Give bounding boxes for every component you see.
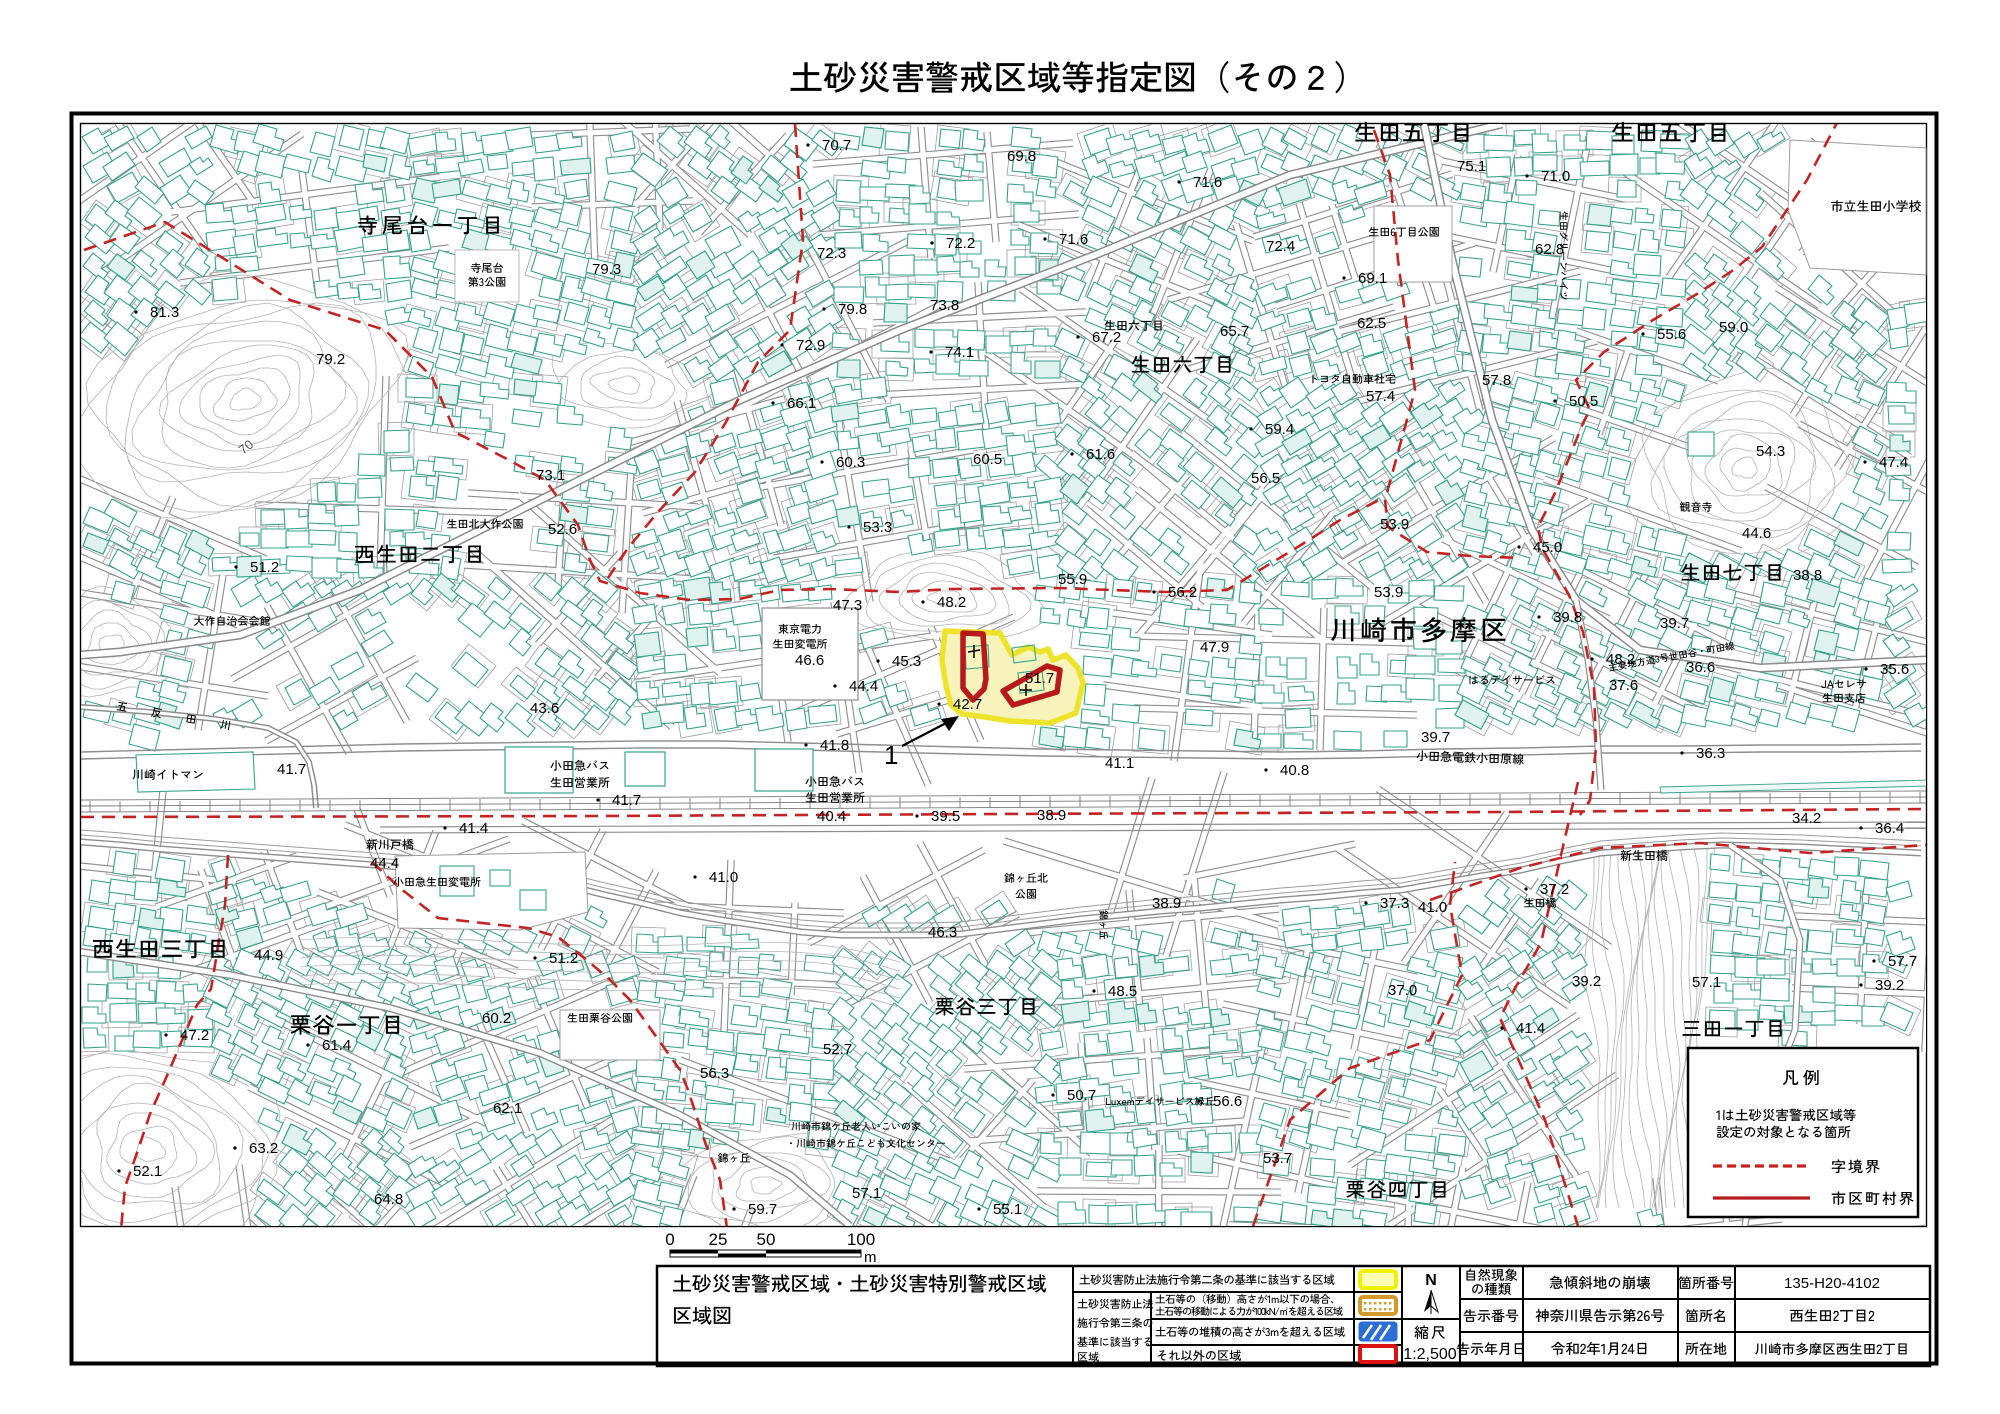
- svg-text:71.6: 71.6: [1193, 174, 1222, 191]
- svg-text:70.7: 70.7: [822, 137, 851, 154]
- svg-text:40.8: 40.8: [1280, 762, 1309, 779]
- svg-text:72.3: 72.3: [817, 245, 846, 262]
- svg-text:60.5: 60.5: [973, 451, 1002, 468]
- svg-text:69.8: 69.8: [1007, 148, 1036, 165]
- svg-text:50.7: 50.7: [1067, 1087, 1096, 1104]
- svg-text:45.3: 45.3: [892, 653, 921, 670]
- svg-text:42.7: 42.7: [953, 696, 982, 713]
- svg-text:79.8: 79.8: [838, 301, 867, 318]
- svg-text:25: 25: [709, 1230, 728, 1249]
- svg-text:36.6: 36.6: [1686, 659, 1715, 676]
- svg-text:59.0: 59.0: [1719, 319, 1748, 336]
- svg-text:36.4: 36.4: [1875, 820, 1904, 837]
- svg-text:53.9: 53.9: [1380, 516, 1409, 533]
- svg-text:38.9: 38.9: [1037, 807, 1066, 824]
- svg-text:43.6: 43.6: [530, 700, 559, 717]
- svg-text:73.1: 73.1: [536, 467, 565, 484]
- svg-text:53.9: 53.9: [1374, 584, 1403, 601]
- svg-text:62.5: 62.5: [1357, 315, 1386, 332]
- svg-text:79.2: 79.2: [316, 351, 345, 368]
- svg-text:41.1: 41.1: [1105, 755, 1134, 772]
- svg-text:40.4: 40.4: [817, 808, 846, 825]
- svg-text:N: N: [1425, 1272, 1437, 1289]
- svg-text:47.2: 47.2: [180, 1027, 209, 1044]
- svg-text:69.1: 69.1: [1358, 270, 1387, 287]
- svg-text:72.9: 72.9: [796, 337, 825, 354]
- svg-text:39.8: 39.8: [1553, 609, 1582, 626]
- svg-text:1: 1: [884, 740, 898, 770]
- svg-text:56.3: 56.3: [700, 1065, 729, 1082]
- svg-text:57.1: 57.1: [1692, 974, 1721, 991]
- svg-text:60.3: 60.3: [836, 454, 865, 471]
- svg-text:50: 50: [757, 1230, 776, 1249]
- svg-text:41.0: 41.0: [709, 869, 738, 886]
- svg-text:45.0: 45.0: [1533, 539, 1562, 556]
- svg-text:37.2: 37.2: [1540, 881, 1569, 898]
- svg-text:57.7: 57.7: [1888, 953, 1917, 970]
- svg-text:38.9: 38.9: [1152, 895, 1181, 912]
- svg-text:56.2: 56.2: [1168, 584, 1197, 601]
- svg-text:52.7: 52.7: [823, 1041, 852, 1058]
- svg-text:51.7: 51.7: [1025, 670, 1054, 687]
- svg-text:67.2: 67.2: [1092, 329, 1121, 346]
- svg-text:51.2: 51.2: [250, 559, 279, 576]
- svg-text:37.3: 37.3: [1380, 895, 1409, 912]
- svg-text:100: 100: [847, 1230, 875, 1249]
- svg-text:53.7: 53.7: [1263, 1150, 1292, 1167]
- svg-text:57.1: 57.1: [852, 1185, 881, 1202]
- svg-text:41.4: 41.4: [459, 820, 488, 837]
- svg-text:81.3: 81.3: [150, 304, 179, 321]
- svg-text:m: m: [864, 1249, 877, 1266]
- svg-text:51.2: 51.2: [549, 950, 578, 967]
- svg-text:41.0: 41.0: [1418, 899, 1447, 916]
- svg-text:41.4: 41.4: [1516, 1020, 1545, 1037]
- svg-text:47.9: 47.9: [1200, 639, 1229, 656]
- svg-text:71.6: 71.6: [1059, 231, 1088, 248]
- svg-text:74.1: 74.1: [945, 344, 974, 361]
- svg-text:59.7: 59.7: [748, 1201, 777, 1218]
- svg-text:72.4: 72.4: [1266, 238, 1295, 255]
- svg-text:35.6: 35.6: [1880, 661, 1909, 678]
- svg-text:57.4: 57.4: [1366, 388, 1395, 405]
- svg-text:71.0: 71.0: [1541, 168, 1570, 185]
- svg-text:36.3: 36.3: [1696, 745, 1725, 762]
- svg-text:34.2: 34.2: [1792, 810, 1821, 827]
- svg-text:75.1: 75.1: [1457, 158, 1486, 175]
- svg-text:72.2: 72.2: [946, 235, 975, 252]
- svg-text:0: 0: [665, 1230, 674, 1249]
- svg-text:79.3: 79.3: [592, 261, 621, 278]
- svg-text:63.2: 63.2: [249, 1140, 278, 1157]
- svg-text:39.7: 39.7: [1660, 615, 1689, 632]
- svg-text:66.1: 66.1: [787, 395, 816, 412]
- svg-text:55.1: 55.1: [993, 1201, 1022, 1218]
- svg-text:38.8: 38.8: [1793, 567, 1822, 584]
- svg-text:48.5: 48.5: [1108, 983, 1137, 1000]
- svg-text:44.9: 44.9: [254, 947, 283, 964]
- svg-text:39.2: 39.2: [1875, 977, 1904, 994]
- svg-text:41.7: 41.7: [612, 792, 641, 809]
- svg-text:37.6: 37.6: [1609, 677, 1638, 694]
- svg-text:44.4: 44.4: [849, 678, 878, 695]
- svg-text:60.2: 60.2: [482, 1010, 511, 1027]
- svg-text:62.8: 62.8: [1535, 241, 1564, 258]
- svg-text:55.6: 55.6: [1657, 326, 1686, 343]
- svg-text:48.2: 48.2: [1606, 651, 1635, 668]
- svg-text:48.2: 48.2: [937, 594, 966, 611]
- svg-text:47.3: 47.3: [833, 597, 862, 614]
- svg-text:52.6: 52.6: [548, 521, 577, 538]
- svg-text:50.5: 50.5: [1569, 393, 1598, 410]
- svg-text:56.6: 56.6: [1213, 1093, 1242, 1110]
- svg-text:52.1: 52.1: [133, 1163, 162, 1180]
- svg-text:44.4: 44.4: [370, 855, 399, 872]
- svg-text:1:2,500: 1:2,500: [1403, 1346, 1456, 1363]
- svg-text:64.8: 64.8: [374, 1191, 403, 1208]
- svg-text:56.5: 56.5: [1251, 470, 1280, 487]
- svg-text:65.7: 65.7: [1220, 323, 1249, 340]
- svg-text:41.7: 41.7: [277, 761, 306, 778]
- svg-text:39.5: 39.5: [931, 808, 960, 825]
- svg-text:73.8: 73.8: [930, 297, 959, 314]
- svg-text:46.6: 46.6: [795, 652, 824, 669]
- svg-text:61.4: 61.4: [322, 1037, 351, 1054]
- svg-text:59.4: 59.4: [1265, 421, 1294, 438]
- svg-text:135-H20-4102: 135-H20-4102: [1784, 1275, 1880, 1292]
- svg-text:53.3: 53.3: [863, 519, 892, 536]
- svg-text:41.8: 41.8: [820, 737, 849, 754]
- svg-text:46.3: 46.3: [928, 924, 957, 941]
- svg-text:54.3: 54.3: [1756, 443, 1785, 460]
- svg-text:61.6: 61.6: [1086, 446, 1115, 463]
- svg-text:47.4: 47.4: [1879, 454, 1908, 471]
- svg-text:44.6: 44.6: [1742, 525, 1771, 542]
- svg-text:39.2: 39.2: [1572, 973, 1601, 990]
- svg-text:55.9: 55.9: [1058, 571, 1087, 588]
- svg-text:62.1: 62.1: [493, 1100, 522, 1117]
- svg-text:57.8: 57.8: [1482, 372, 1511, 389]
- svg-text:39.7: 39.7: [1421, 729, 1450, 746]
- svg-text:37.0: 37.0: [1388, 982, 1417, 999]
